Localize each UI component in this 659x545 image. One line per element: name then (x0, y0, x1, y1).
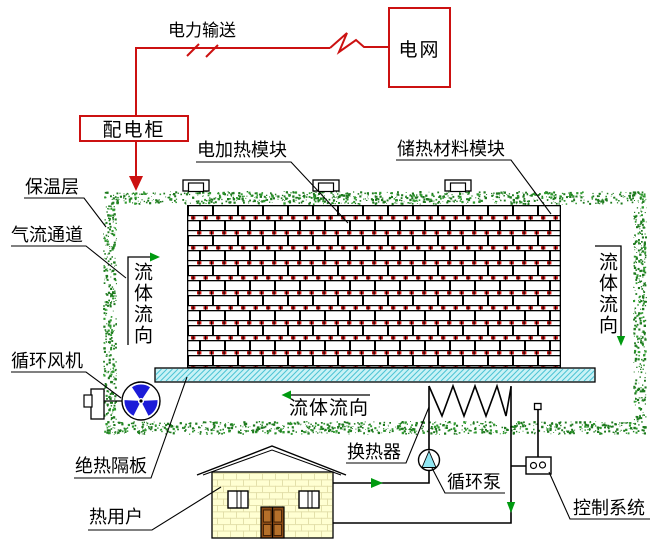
tank-top-lugs (183, 180, 471, 192)
circulation-pump-label: 循环泵 (447, 473, 501, 492)
house-window (299, 491, 319, 508)
circulation-fan-icon (122, 382, 160, 420)
power-grid-box: 电网 (388, 7, 451, 88)
storage-material-module-label: 储热材料模块 (397, 140, 505, 159)
fluid-flow-label-right: 流体流向 (596, 252, 616, 336)
house-door (261, 507, 284, 538)
power-transmission-label: 电力输送 (168, 22, 236, 40)
adiabatic-partition-label: 绝热隔板 (75, 457, 147, 476)
storage-brick-stack (187, 205, 561, 370)
distribution-cabinet-box: 配电柜 (79, 115, 189, 142)
circulation-pump-icon (419, 450, 440, 471)
power-grid-label: 电网 (398, 35, 440, 62)
heat-exchanger-coil (429, 386, 511, 416)
power-supply-lines (129, 33, 388, 191)
house-icon (197, 446, 346, 538)
control-system-label: 控制系统 (573, 499, 645, 518)
heat-exchanger-label: 换热器 (347, 443, 401, 462)
heat-user-label: 热用户 (89, 508, 143, 527)
fluid-flow-label-bottom: 流体流向 (289, 399, 369, 419)
electric-heating-module-label: 电加热模块 (197, 141, 287, 160)
airflow-channel-label: 气流通道 (11, 226, 83, 245)
power-arrow-icon (129, 176, 143, 191)
temperature-sensor-icon (535, 404, 542, 410)
fan-motor-icon (84, 389, 123, 419)
thermal-storage-system-diagram: 配电柜 电网 电力输送 电加热模块 储热材料模块 保温层 气流通道 循环风机 绝… (0, 0, 659, 545)
distribution-cabinet-label: 配电柜 (102, 115, 165, 142)
fluid-flow-label-left: 流体流向 (131, 262, 151, 346)
control-box-icon (526, 457, 551, 474)
circulation-fan-label: 循环风机 (11, 352, 83, 371)
insulation-layer-label: 保温层 (25, 178, 79, 197)
adiabatic-partition-plate (144, 368, 613, 382)
house-window (228, 491, 248, 508)
